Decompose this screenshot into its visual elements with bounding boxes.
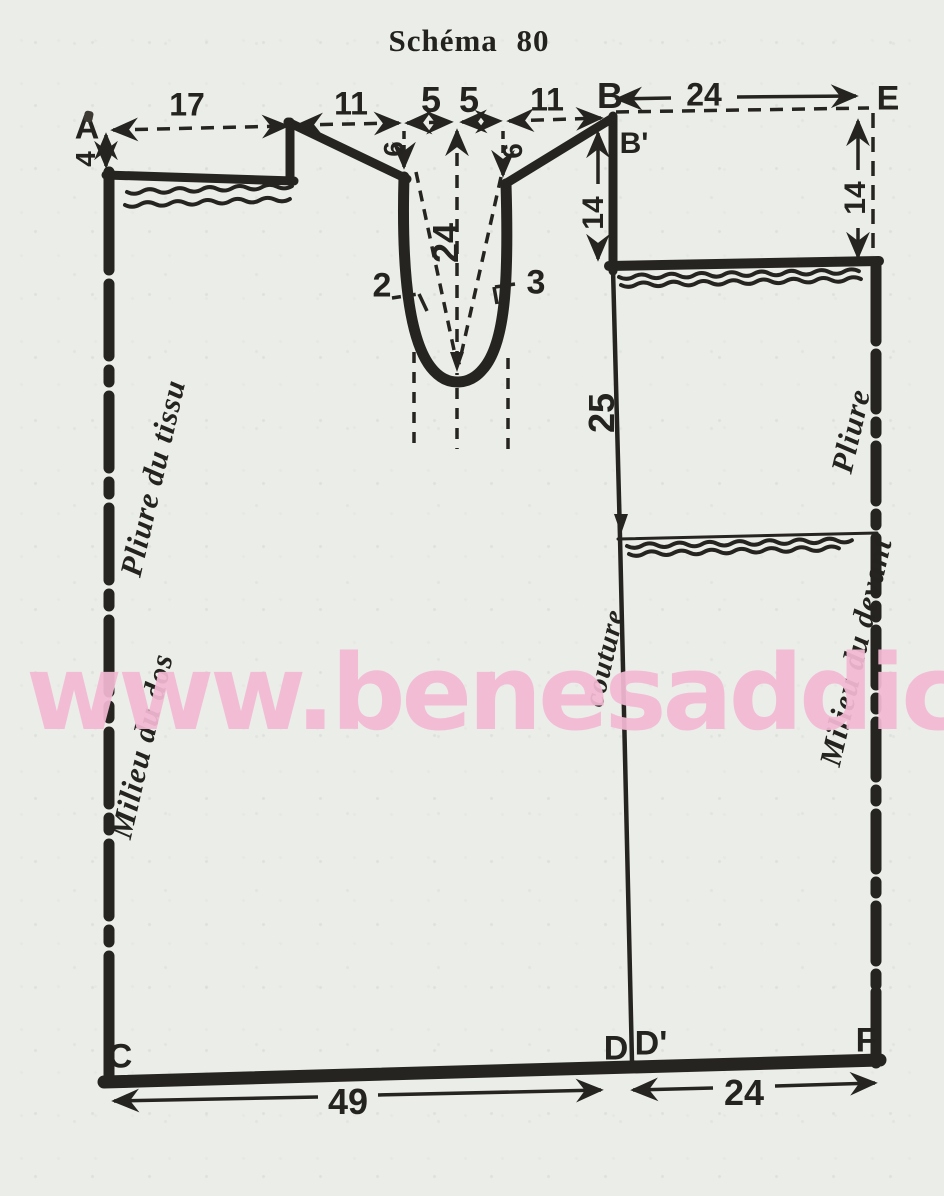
- dim-49-bottom: 49: [328, 1081, 368, 1123]
- gathering-marks: [125, 185, 861, 556]
- dim-5-left: 5: [421, 79, 441, 121]
- dim-2: 2: [373, 267, 392, 306]
- dim-5-right: 5: [459, 79, 479, 121]
- dim-14-right: 14: [839, 181, 873, 214]
- sewing-pattern-drawing: [0, 0, 944, 1196]
- neckline-slit: [403, 177, 506, 382]
- dim-17: 17: [169, 87, 205, 124]
- waist-arrow: [614, 514, 628, 534]
- front-waist-line: [618, 533, 877, 539]
- point-c: C: [108, 1038, 133, 1077]
- dim-6-right: 6: [497, 143, 529, 159]
- front-top-edge: [609, 261, 879, 266]
- point-b-prime: B': [620, 127, 649, 161]
- point-e: E: [877, 80, 900, 119]
- page-title: Schéma 80: [388, 23, 549, 59]
- pattern-outline: [104, 116, 880, 1082]
- point-f: F: [856, 1022, 877, 1061]
- dim-24-slit: 24: [425, 223, 467, 263]
- point-d-prime: D': [635, 1025, 668, 1064]
- dim-24-bottom: 24: [724, 1072, 764, 1114]
- dim-11-right: 11: [530, 82, 564, 119]
- back-top-edge: [106, 175, 294, 181]
- dim-3: 3: [527, 264, 546, 303]
- dim-25: 25: [581, 393, 623, 433]
- dim-24-top: 24: [686, 77, 722, 114]
- point-b: B: [597, 75, 623, 117]
- dim-6-left: 6: [378, 141, 410, 157]
- dim-14-mid: 14: [577, 196, 611, 229]
- slit-bottom-arrow: [450, 352, 464, 372]
- pattern-diagram-page: Schéma 80 A B B' E C D D' F 17 11 5 5 11…: [0, 0, 944, 1196]
- point-d: D: [604, 1030, 629, 1069]
- dim-11-left: 11: [334, 86, 368, 123]
- dim-4: 4: [70, 151, 102, 167]
- dimension-lines: [106, 96, 875, 1101]
- watermark-text: www.benesaddict.fr: [26, 641, 944, 745]
